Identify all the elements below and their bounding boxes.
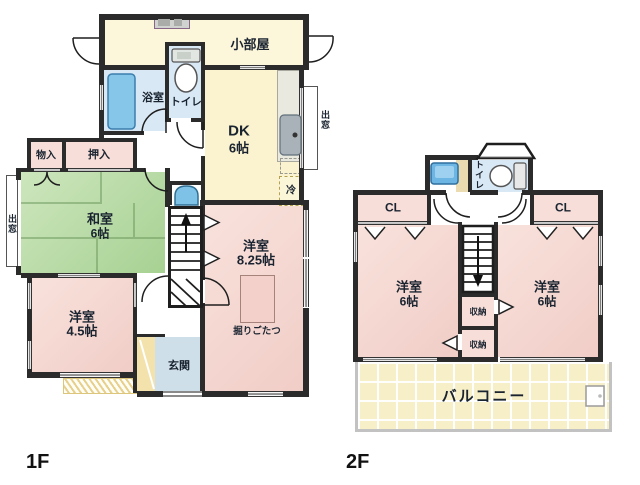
wall xyxy=(598,190,603,236)
label-shuno-bottom: 収納 xyxy=(469,340,486,349)
window xyxy=(248,391,283,397)
wall xyxy=(437,357,496,362)
label-oshiire: 押入 xyxy=(88,149,110,161)
label-yoshitsu-2f-left: 洋室 6帖 xyxy=(396,281,422,310)
wall xyxy=(468,158,472,192)
label-yoshitsu-825-size: 8.25帖 xyxy=(237,253,275,268)
wall xyxy=(200,205,205,280)
wall xyxy=(353,262,358,362)
wall xyxy=(598,315,603,362)
wall xyxy=(137,391,163,397)
label-yoshitsu-2f-right-name: 洋室 xyxy=(534,280,560,295)
label-horigotatsu: 掘りごたつ xyxy=(233,327,281,337)
wall xyxy=(133,307,137,337)
wall xyxy=(99,14,105,70)
wall xyxy=(27,309,32,341)
wall xyxy=(303,14,309,70)
wall xyxy=(62,138,66,172)
window xyxy=(68,168,130,172)
wall xyxy=(16,172,21,180)
wall xyxy=(167,181,205,185)
label-yoshitsu-825: 洋室 8.25帖 xyxy=(237,240,275,269)
label-yoshitsu-825-name: 洋室 xyxy=(243,239,269,254)
label-bath: 浴室 xyxy=(142,92,164,104)
horigotatsu-table xyxy=(240,275,275,323)
closet-track xyxy=(534,221,598,225)
window xyxy=(34,168,60,172)
wall xyxy=(27,138,31,172)
wall xyxy=(205,65,240,70)
veranda-hatch xyxy=(63,378,137,394)
label-dk-name: DK xyxy=(228,123,250,140)
bay-window-2f xyxy=(478,144,534,158)
wall xyxy=(130,168,145,172)
label-refrigerator: 冷 xyxy=(286,186,296,197)
wall xyxy=(133,138,137,172)
wall xyxy=(425,155,430,195)
floor-label-1f: 1F xyxy=(26,451,49,474)
wall xyxy=(528,158,533,192)
label-yoshitsu-45-size: 4.5帖 xyxy=(66,324,97,339)
window xyxy=(133,283,137,307)
wall xyxy=(27,138,137,142)
wall xyxy=(530,190,534,225)
wall xyxy=(299,70,304,88)
wall xyxy=(458,350,462,362)
label-dk-size: 6帖 xyxy=(229,140,249,155)
entrance-door xyxy=(163,391,202,397)
wall xyxy=(201,42,205,122)
window xyxy=(58,273,100,278)
window xyxy=(363,357,437,362)
wall xyxy=(133,337,137,393)
label-toilet-1f: トイレ xyxy=(170,97,202,109)
label-kobeya: 小部屋 xyxy=(230,38,269,52)
wall xyxy=(458,293,498,297)
window xyxy=(500,357,585,362)
label-bay-window-right: 出窓 xyxy=(319,110,329,130)
wall xyxy=(353,190,358,232)
wall xyxy=(200,303,205,391)
partition-2f xyxy=(456,160,468,192)
wall xyxy=(458,222,462,334)
kitchen-counter xyxy=(277,70,301,162)
stairs-2f xyxy=(463,226,493,292)
window xyxy=(240,65,265,70)
wall xyxy=(165,42,205,46)
wall xyxy=(585,357,603,362)
window xyxy=(303,259,309,307)
label-bay-window-left: 出窓 xyxy=(6,214,16,234)
door-arcs-2f xyxy=(434,193,526,223)
wall xyxy=(133,273,137,283)
tatami-seam xyxy=(133,203,135,237)
wall xyxy=(60,168,68,172)
tatami-seam xyxy=(100,172,102,204)
label-yoshitsu-45: 洋室 4.5帖 xyxy=(66,311,97,340)
label-yoshitsu-45-name: 洋室 xyxy=(69,310,95,325)
wall xyxy=(353,357,363,362)
wall xyxy=(353,190,446,195)
counter-dashed-area xyxy=(280,158,301,174)
wall xyxy=(165,42,169,122)
genkan-step xyxy=(137,337,155,393)
label-washitsu: 和室 6帖 xyxy=(87,213,113,242)
floor-plan-canvas: 小部屋 浴室 トイレ DK 6帖 出窓 冷 物入 押入 和室 6帖 出窓 洋室 … xyxy=(0,0,640,485)
wall xyxy=(200,200,309,205)
window xyxy=(598,236,603,266)
washbasin-icon-2f xyxy=(431,163,458,184)
wall xyxy=(99,110,104,140)
label-yoshitsu-2f-left-size: 6帖 xyxy=(400,295,419,309)
label-yoshitsu-2f-right: 洋室 6帖 xyxy=(534,281,560,310)
wall xyxy=(522,190,603,195)
window xyxy=(27,341,32,369)
wall xyxy=(494,314,498,362)
wall xyxy=(99,14,309,20)
window xyxy=(60,372,120,378)
label-genkan: 玄関 xyxy=(168,360,190,372)
label-toilet-2f: トイレ xyxy=(473,160,483,190)
wall xyxy=(100,273,137,278)
label-yoshitsu-2f-left-name: 洋室 xyxy=(396,280,422,295)
wall xyxy=(167,185,172,205)
label-dk: DK 6帖 xyxy=(228,124,250,157)
label-cl-left: CL xyxy=(385,201,401,214)
wall xyxy=(137,334,165,337)
closet-track xyxy=(358,221,427,225)
label-washitsu-name: 和室 xyxy=(87,212,113,227)
wall xyxy=(598,266,603,285)
wall xyxy=(283,391,309,397)
wall xyxy=(494,222,498,300)
tatami-seam xyxy=(96,239,98,273)
tatami-seam xyxy=(21,202,100,204)
floor-label-2f: 2F xyxy=(346,451,369,474)
wall xyxy=(99,70,104,85)
label-cl-right: CL xyxy=(555,201,571,214)
stairwell-1f xyxy=(169,183,202,308)
wall xyxy=(470,190,498,195)
label-shuno-top: 収納 xyxy=(469,307,486,316)
label-yoshitsu-2f-right-size: 6帖 xyxy=(538,295,557,309)
wall xyxy=(99,131,144,135)
wall xyxy=(165,118,171,122)
label-washitsu-size: 6帖 xyxy=(91,227,110,241)
window xyxy=(27,283,32,309)
wall xyxy=(201,122,205,130)
wall xyxy=(99,65,168,70)
bay-window-right xyxy=(303,86,318,170)
window xyxy=(299,88,304,168)
window xyxy=(353,232,358,262)
wall xyxy=(458,326,498,330)
wall xyxy=(303,308,309,397)
window xyxy=(598,285,603,315)
window xyxy=(99,85,104,110)
wall xyxy=(202,391,248,397)
wall xyxy=(427,190,431,225)
label-mononyu: 物入 xyxy=(36,151,56,162)
label-balcony: バルコニー xyxy=(442,389,527,406)
window xyxy=(303,210,309,257)
wall xyxy=(27,372,60,378)
